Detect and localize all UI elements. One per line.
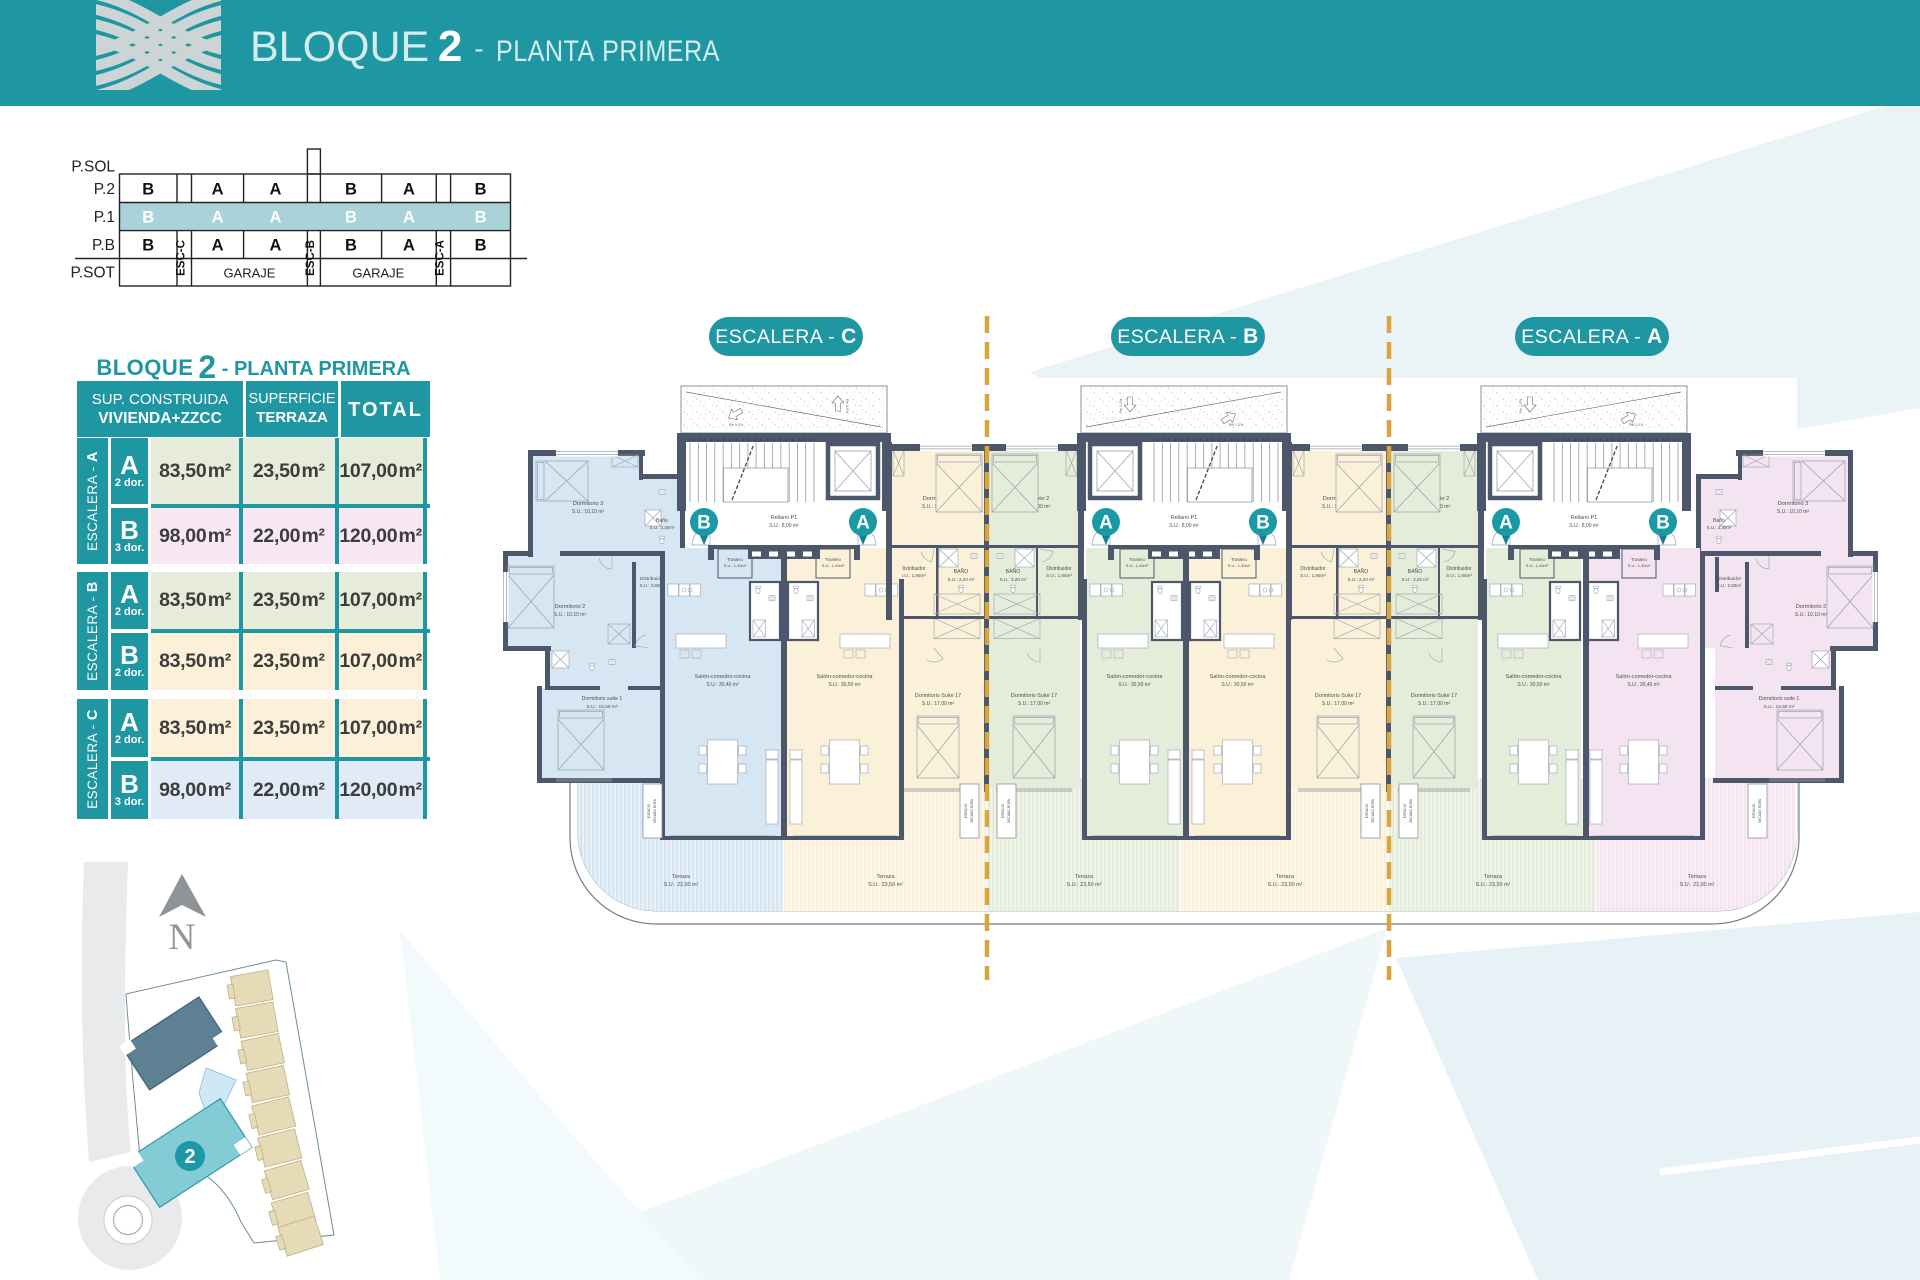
svg-text:B: B — [475, 209, 487, 227]
svg-text:S.U.: 8,00 m²: S.U.: 8,00 m² — [1169, 523, 1199, 529]
svg-text:S.U.: 3,30m²: S.U.: 3,30m² — [1707, 525, 1732, 530]
svg-text:B: B — [475, 237, 487, 255]
svg-text:S.U.: 30,40 m²: S.U.: 30,40 m² — [706, 682, 739, 688]
svg-text:B: B — [697, 513, 711, 534]
svg-text:S.U.: 3,30m²: S.U.: 3,30m² — [650, 525, 675, 530]
svg-text:Baño: Baño — [656, 518, 668, 524]
svg-text:Baño: Baño — [1713, 518, 1725, 524]
svg-text:A: A — [1499, 513, 1513, 534]
svg-text:ESPACIO: ESPACIO — [1752, 803, 1756, 818]
svg-text:Rellano P1: Rellano P1 — [1571, 515, 1597, 521]
svg-text:Dormitorio Suite 17: Dormitorio Suite 17 — [915, 693, 961, 699]
svg-text:Traslero: Traslero — [727, 557, 743, 562]
svg-text:S.U.: 30,50 m²: S.U.: 30,50 m² — [1517, 682, 1550, 688]
svg-text:S.U.: 30,50 m²: S.U.: 30,50 m² — [1118, 682, 1151, 688]
svg-text:Dormitorio suite 1: Dormitorio suite 1 — [582, 696, 623, 702]
svg-text:Salón-comedor-cocina: Salón-comedor-cocina — [695, 674, 752, 680]
svg-text:SECADO ROPA: SECADO ROPA — [1371, 798, 1375, 823]
svg-text:S.U.: 10,10 m²: S.U.: 10,10 m² — [572, 509, 605, 515]
svg-text:Dormitorio 2: Dormitorio 2 — [555, 604, 585, 610]
svg-text:ESPACIO: ESPACIO — [964, 803, 968, 818]
svg-text:Pte 1-0%: Pte 1-0% — [1119, 399, 1123, 413]
svg-text:ESCALERA - A: ESCALERA - A — [1521, 325, 1662, 348]
svg-text:Salón-comedor-cocina: Salón-comedor-cocina — [1616, 674, 1673, 680]
svg-text:Dormitorio Suite 17: Dormitorio Suite 17 — [1011, 693, 1057, 699]
svg-text:BAÑO: BAÑO — [1408, 568, 1423, 575]
svg-text:S.U.: 23,50 m²: S.U.: 23,50 m² — [868, 882, 903, 888]
svg-text:Dormitorio 3: Dormitorio 3 — [573, 501, 603, 507]
svg-text:S.U.: 10,10 m²: S.U.: 10,10 m² — [1795, 612, 1828, 618]
svg-text:S.U.: 1,40m²: S.U.: 1,40m² — [724, 563, 747, 568]
svg-text:B: B — [345, 181, 357, 199]
svg-text:ESPACIO: ESPACIO — [1001, 803, 1005, 818]
svg-text:S.U.: 3,20 m²: S.U.: 3,20 m² — [999, 577, 1027, 582]
svg-text:S.U.: 17,00 m²: S.U.: 17,00 m² — [922, 701, 955, 707]
svg-text:Salón-comedor-cocina: Salón-comedor-cocina — [817, 674, 874, 680]
svg-text:Terraza: Terraza — [877, 874, 895, 880]
svg-text:S.U.: 15,50 m²: S.U.: 15,50 m² — [1764, 704, 1795, 710]
svg-text:A: A — [270, 181, 282, 199]
svg-text:BAÑO: BAÑO — [1354, 568, 1369, 575]
svg-text:ESPACIO: ESPACIO — [1403, 803, 1407, 818]
svg-text:S.U.: 17,00 m²: S.U.: 17,00 m² — [1322, 701, 1355, 707]
svg-text:S.U.: 8,00 m²: S.U.: 8,00 m² — [1569, 523, 1599, 529]
svg-text:Terraza: Terraza — [1484, 874, 1502, 880]
svg-text:A: A — [856, 513, 870, 534]
svg-text:ESC-A: ESC-A — [435, 240, 447, 276]
svg-text:P.SOT: P.SOT — [70, 265, 115, 282]
svg-text:S.U.: 3,20 m²: S.U.: 3,20 m² — [947, 577, 975, 582]
svg-text:Terraza: Terraza — [1075, 874, 1093, 880]
svg-text:P.SOL: P.SOL — [71, 159, 115, 176]
svg-text:Distribuidor: Distribuidor — [900, 566, 926, 572]
svg-text:S.U.: 3,20 m²: S.U.: 3,20 m² — [1401, 577, 1429, 582]
svg-text:BAÑO: BAÑO — [954, 568, 969, 575]
svg-text:A: A — [270, 237, 282, 255]
svg-text:Distribuidor: Distribuidor — [1300, 566, 1326, 572]
svg-text:Pte 1-0%: Pte 1-0% — [845, 399, 849, 413]
svg-text:Distribuidor: Distribuidor — [1717, 576, 1742, 582]
svg-text:S.U.: 2,80m²: S.U.: 2,80m² — [1717, 583, 1742, 588]
svg-text:Dormitorio 3: Dormitorio 3 — [1778, 501, 1808, 507]
svg-text:SECADO ROPA: SECADO ROPA — [1007, 798, 1011, 823]
svg-text:Traslero: Traslero — [1231, 557, 1247, 562]
svg-text:ESPACIO: ESPACIO — [1365, 803, 1369, 818]
svg-text:GARAJE: GARAJE — [352, 266, 404, 281]
svg-text:ESC-C: ESC-C — [175, 240, 187, 276]
svg-text:S.U.: 30,40 m²: S.U.: 30,40 m² — [1627, 682, 1660, 688]
svg-text:B: B — [142, 209, 154, 227]
svg-text:S.U.: 23,50 m²: S.U.: 23,50 m² — [1268, 882, 1303, 888]
svg-text:S.U.: 23,50 m²: S.U.: 23,50 m² — [1476, 882, 1511, 888]
svg-text:Terraza: Terraza — [1276, 874, 1294, 880]
svg-text:S.U.: 22,00 m²: S.U.: 22,00 m² — [664, 882, 699, 888]
svg-text:S.U.: 23,50 m²: S.U.: 23,50 m² — [1067, 882, 1102, 888]
svg-text:Distribuidor: Distribuidor — [1046, 566, 1072, 572]
svg-text:ESPACIO: ESPACIO — [647, 803, 651, 818]
svg-text:S.U.: 17,00 m²: S.U.: 17,00 m² — [1418, 701, 1451, 707]
svg-text:A: A — [212, 237, 224, 255]
svg-text:S.U.: 1,95m²: S.U.: 1,95m² — [1446, 573, 1472, 578]
svg-text:Dormitorio Suite 17: Dormitorio Suite 17 — [1411, 693, 1457, 699]
svg-text:P.1: P.1 — [94, 209, 115, 226]
svg-text:B: B — [345, 237, 357, 255]
svg-text:A: A — [212, 209, 224, 227]
svg-text:B: B — [345, 209, 357, 227]
svg-text:B: B — [142, 237, 154, 255]
svg-text:S.U.: 8,00 m²: S.U.: 8,00 m² — [769, 523, 799, 529]
svg-text:Dormitorio suite 1: Dormitorio suite 1 — [1759, 696, 1800, 702]
svg-text:BAÑO: BAÑO — [1006, 568, 1021, 575]
svg-text:S.U.: 3,20 m²: S.U.: 3,20 m² — [1347, 577, 1375, 582]
svg-text:Salón-comedor-cocina: Salón-comedor-cocina — [1107, 674, 1164, 680]
svg-text:S.U.: 15,50 m²: S.U.: 15,50 m² — [587, 704, 618, 710]
svg-text:A: A — [403, 181, 415, 199]
svg-text:S.U.: 17,00 m²: S.U.: 17,00 m² — [1018, 701, 1051, 707]
svg-text:S.U.: 10,10 m²: S.U.: 10,10 m² — [554, 612, 587, 618]
svg-text:Traslero: Traslero — [1129, 557, 1145, 562]
svg-text:Rellano P1: Rellano P1 — [771, 515, 797, 521]
svg-text:S.U.: 1,40m²: S.U.: 1,40m² — [1228, 563, 1251, 568]
svg-text:B: B — [1656, 513, 1670, 534]
svg-text:B: B — [1256, 513, 1270, 534]
svg-text:P.2: P.2 — [94, 181, 115, 198]
svg-text:A: A — [270, 209, 282, 227]
svg-text:Pte 1-0%: Pte 1-0% — [1629, 423, 1643, 427]
svg-text:A: A — [403, 209, 415, 227]
svg-text:S.U.: 1,40m²: S.U.: 1,40m² — [1526, 563, 1549, 568]
svg-text:Traslero: Traslero — [1529, 557, 1545, 562]
svg-text:Pte 1-0%: Pte 1-0% — [1229, 423, 1243, 427]
svg-text:Rellano P1: Rellano P1 — [1171, 515, 1197, 521]
svg-text:S.U.: 1,95m²: S.U.: 1,95m² — [1046, 573, 1072, 578]
svg-text:B: B — [475, 181, 487, 199]
svg-text:S.U.: 30,50 m²: S.U.: 30,50 m² — [1221, 682, 1254, 688]
svg-text:N: N — [169, 917, 196, 958]
svg-text:Salón-comedor-cocina: Salón-comedor-cocina — [1210, 674, 1267, 680]
svg-text:A: A — [403, 237, 415, 255]
svg-text:SECADO ROPA: SECADO ROPA — [1409, 798, 1413, 823]
svg-text:S.U.: 1,95m²: S.U.: 1,95m² — [900, 573, 926, 578]
svg-text:Salón-comedor-cocina: Salón-comedor-cocina — [1506, 674, 1563, 680]
svg-text:S.U.: 1,95m²: S.U.: 1,95m² — [1300, 573, 1326, 578]
svg-text:A: A — [212, 181, 224, 199]
svg-text:SECADO ROPA: SECADO ROPA — [1758, 798, 1762, 823]
svg-text:Terraza: Terraza — [672, 874, 690, 880]
svg-text:Dormitorio Suite 17: Dormitorio Suite 17 — [1315, 693, 1361, 699]
svg-text:Pte 1-0%: Pte 1-0% — [729, 423, 743, 427]
svg-text:2: 2 — [184, 1146, 195, 1168]
svg-text:Distribuidor: Distribuidor — [1446, 566, 1472, 572]
svg-text:S.U.: 22,00 m²: S.U.: 22,00 m² — [1680, 882, 1715, 888]
svg-text:S.U.: 1,40m²: S.U.: 1,40m² — [1126, 563, 1149, 568]
svg-text:P.B: P.B — [92, 237, 115, 254]
svg-text:ESCALERA - B: ESCALERA - B — [1117, 325, 1258, 348]
svg-text:Dormitorio 2: Dormitorio 2 — [1796, 604, 1826, 610]
svg-text:Pte 1-0%: Pte 1-0% — [1519, 399, 1523, 413]
svg-text:S.U.: 1,40m²: S.U.: 1,40m² — [1628, 563, 1651, 568]
svg-text:ESC-B: ESC-B — [305, 240, 317, 276]
svg-text:B: B — [142, 181, 154, 199]
svg-text:Traslero: Traslero — [825, 557, 841, 562]
svg-text:S.U.: 30,50 m²: S.U.: 30,50 m² — [828, 682, 861, 688]
svg-text:SECADO ROPA: SECADO ROPA — [653, 798, 657, 823]
svg-text:ESCALERA - C: ESCALERA - C — [715, 325, 856, 348]
svg-text:GARAJE: GARAJE — [223, 266, 275, 281]
svg-text:S.U.: 1,40m²: S.U.: 1,40m² — [822, 563, 845, 568]
svg-text:Traslero: Traslero — [1631, 557, 1647, 562]
svg-text:S.U.: 10,10 m²: S.U.: 10,10 m² — [1777, 509, 1810, 515]
svg-text:SECADO ROPA: SECADO ROPA — [970, 798, 974, 823]
svg-text:Terraza: Terraza — [1688, 874, 1706, 880]
svg-text:A: A — [1099, 513, 1113, 534]
